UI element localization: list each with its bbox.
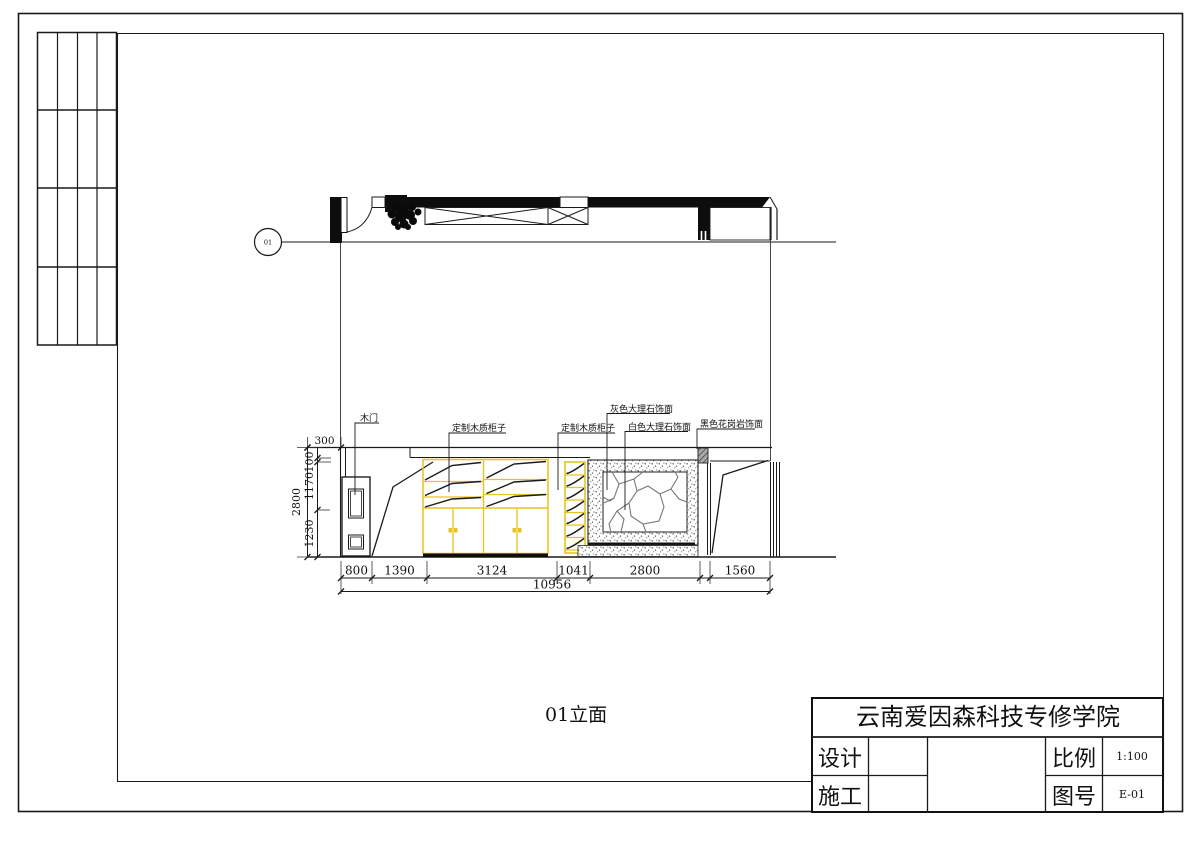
door-leaf-plan (341, 198, 347, 233)
dimension-vertical-chain: 2800 100 1170 1230 300 (290, 435, 344, 560)
dimension-horizontal-chain: 800 1390 3124 1041 2800 1560 10956 (338, 561, 773, 595)
company-name: 云南爱因森科技专修学院 (856, 703, 1120, 731)
title-block: 云南爱因森科技专修学院 设计 施工 比例 图号 1:100 E-01 (812, 698, 1163, 812)
dim-1560: 1560 (725, 564, 756, 578)
svg-text:黑色花岗岩饰面: 黑色花岗岩饰面 (700, 418, 763, 430)
dim-300: 300 (314, 435, 334, 447)
dim-1041: 1041 (558, 564, 589, 578)
ceiling-cross-box (425, 208, 588, 225)
elevation-marker-number: 01 (264, 239, 272, 247)
wall-section-left (330, 197, 342, 243)
stone-base (578, 546, 698, 557)
dim-total: 10956 (533, 578, 571, 592)
stone-feature-wall (578, 460, 698, 557)
wood-door-elevation (342, 477, 370, 556)
scale-value: 1:100 (1116, 750, 1148, 763)
sheet-border (19, 14, 1183, 812)
dim-1390: 1390 (384, 564, 415, 578)
cad-canvas: 01 (0, 0, 1200, 848)
dim-2800: 2800 (630, 564, 661, 578)
cad-sheet: { "plan": { "marker": "01" }, "callouts"… (0, 0, 1200, 848)
louver-panel (565, 462, 585, 553)
wood-cabinet (423, 460, 548, 558)
callout-black-granite: 黑色花岗岩饰面 (697, 418, 763, 449)
door-swing-arc (347, 208, 372, 233)
design-label: 设计 (818, 747, 862, 772)
right-wall-section (710, 461, 780, 558)
dim-1170: 1170 (303, 472, 316, 500)
wall-column-plan (698, 197, 710, 240)
margin-grid (38, 33, 117, 346)
dim-800: 800 (345, 564, 368, 578)
construction-label: 施工 (818, 785, 862, 810)
elevation-view (307, 447, 836, 557)
svg-text:木门: 木门 (360, 412, 378, 424)
dim-100: 100 (303, 452, 316, 473)
scale-label: 比例 (1052, 747, 1096, 772)
dim-1230: 1230 (303, 520, 316, 548)
louver-slats (567, 464, 585, 549)
view-caption: 01立面 (545, 704, 607, 726)
dim-v-total: 2800 (290, 488, 303, 516)
drawing-no-value: E-01 (1119, 788, 1145, 801)
dim-3124: 3124 (477, 564, 508, 578)
granite-trim (698, 448, 708, 463)
shelf-lines (425, 462, 546, 508)
svg-text:定制木质柜子: 定制木质柜子 (452, 422, 506, 434)
drawing-no-label: 图号 (1052, 785, 1096, 810)
